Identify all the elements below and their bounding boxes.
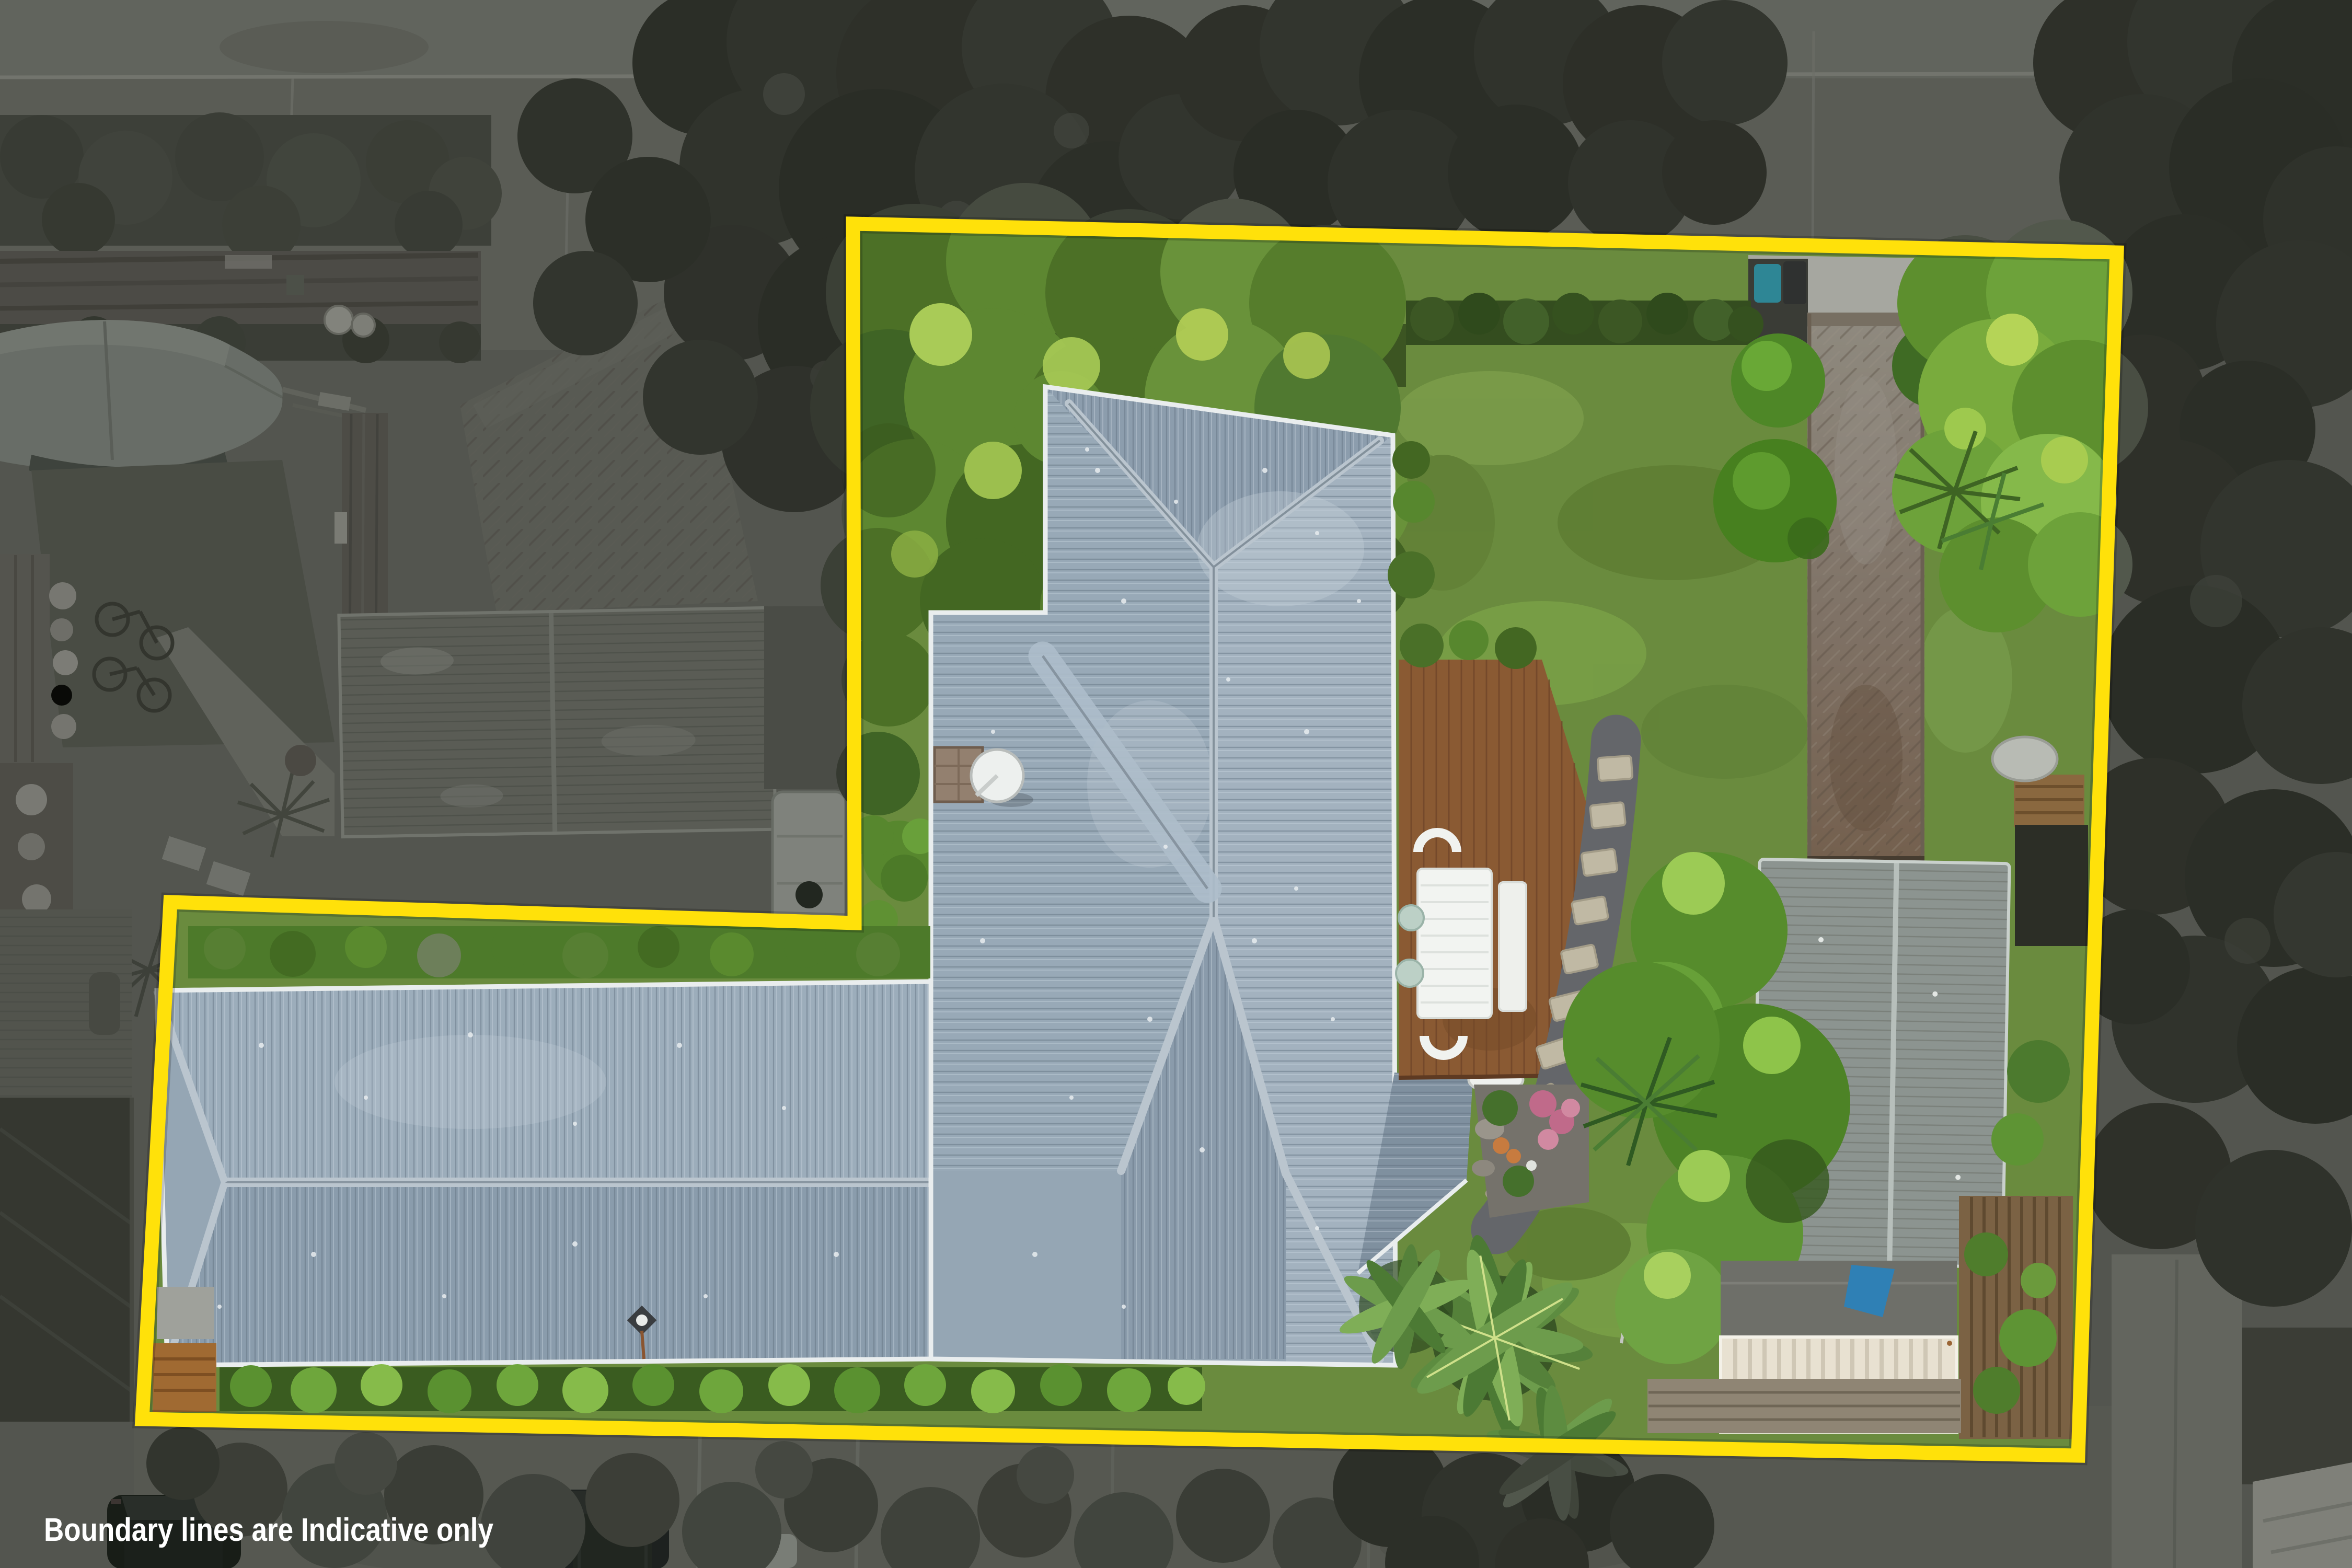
south-hedge xyxy=(220,1364,1205,1413)
rear-deck-boards xyxy=(1647,1379,1961,1433)
aerial-photo: Boundary lines are Indicative only xyxy=(0,0,2352,1568)
hedge-strip-north-of-wing xyxy=(188,926,930,978)
garden-bench xyxy=(2014,775,2084,827)
outdoor-bench xyxy=(1499,882,1526,1011)
teal-wheelie-bin xyxy=(1754,264,1781,303)
garden-bed-dark xyxy=(2015,825,2088,946)
frost-cloth-plant xyxy=(1992,737,2057,781)
wood-stack xyxy=(153,1287,216,1412)
plate xyxy=(1399,905,1424,930)
north-hedge xyxy=(1406,293,1763,345)
plate xyxy=(1396,960,1423,987)
outdoor-dining-table xyxy=(1417,869,1492,1018)
flower-garden xyxy=(1472,1085,1589,1218)
caption: Boundary lines are Indicative only xyxy=(44,1512,493,1548)
west-wing-roof xyxy=(157,982,931,1365)
